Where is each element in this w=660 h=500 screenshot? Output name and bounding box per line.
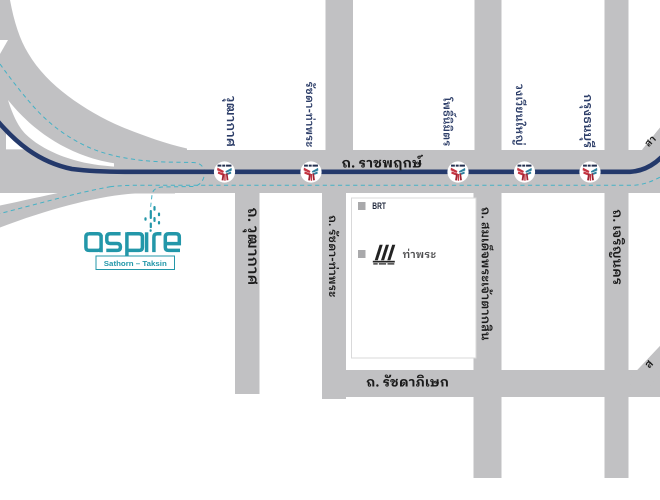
svg-text:Sathorn – Taksin: Sathorn – Taksin <box>104 259 167 268</box>
svg-text:BRT: BRT <box>372 201 386 212</box>
